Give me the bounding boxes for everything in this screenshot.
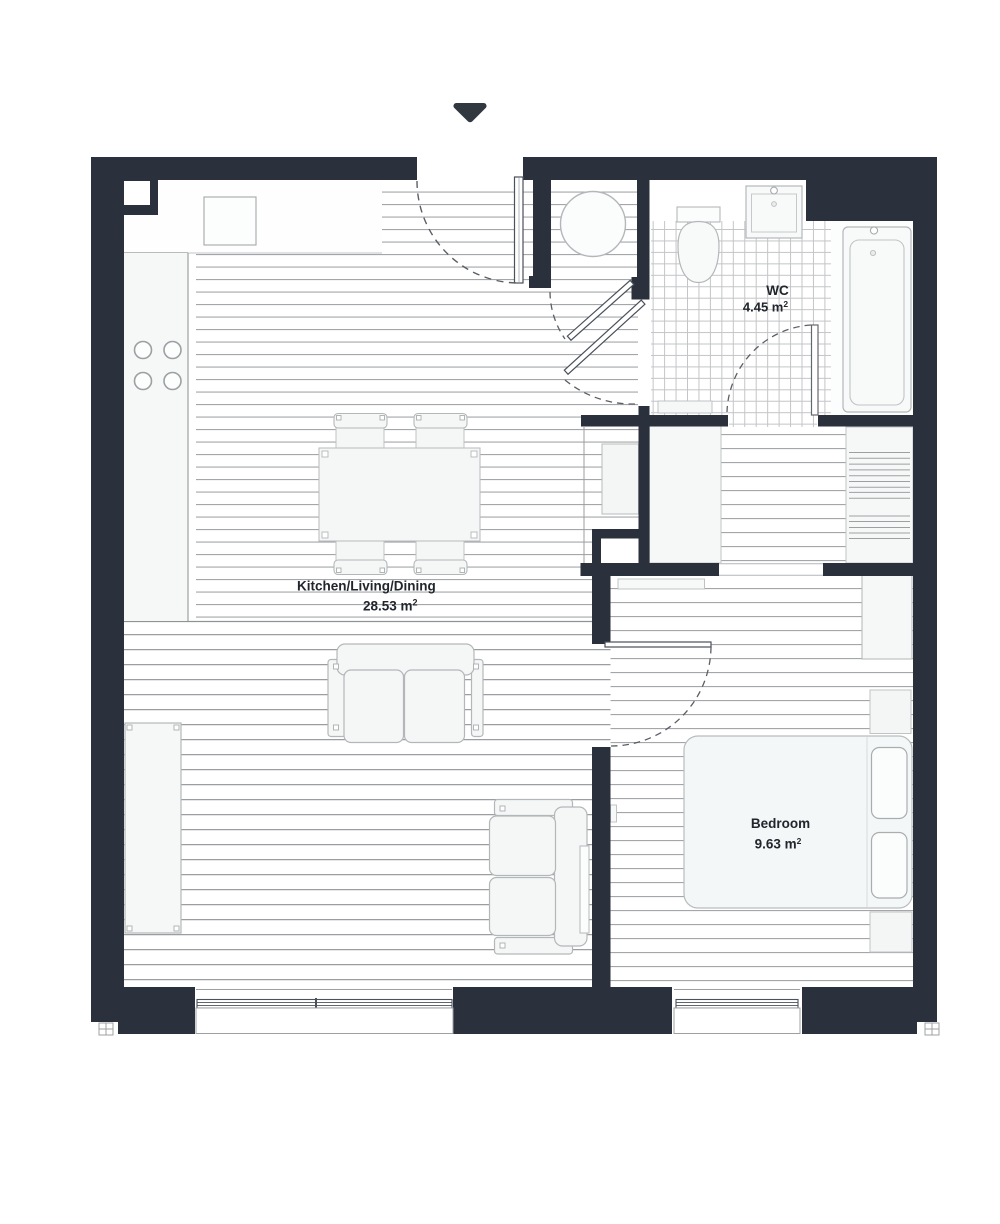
svg-text:28.53 m2: 28.53 m2 — [363, 598, 418, 614]
svg-text:Bedroom: Bedroom — [751, 816, 810, 831]
svg-text:Kitchen/Living/Dining: Kitchen/Living/Dining — [297, 579, 436, 594]
svg-text:4.45 m2: 4.45 m2 — [743, 299, 788, 315]
svg-text:9.63 m2: 9.63 m2 — [755, 836, 802, 852]
svg-text:WC: WC — [766, 283, 789, 298]
